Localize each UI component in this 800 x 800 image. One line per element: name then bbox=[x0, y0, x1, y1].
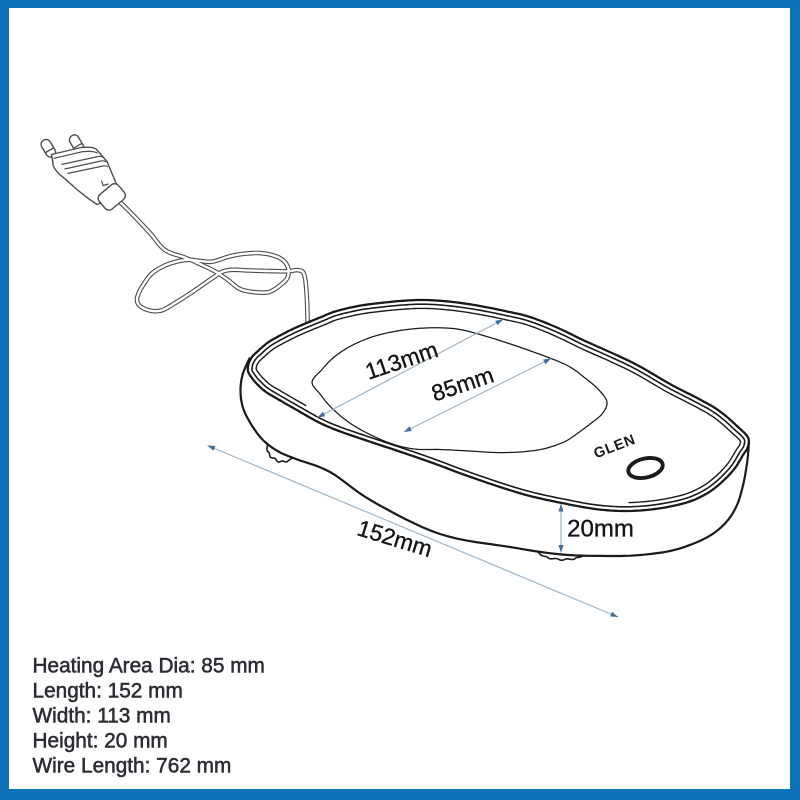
svg-text:Wire Length: 762 mm: Wire Length: 762 mm bbox=[33, 755, 232, 778]
svg-text:Heating Area Dia: 85 mm: Heating Area Dia: 85 mm bbox=[33, 655, 265, 678]
svg-text:Width: 113 mm: Width: 113 mm bbox=[33, 705, 171, 728]
svg-text:Length: 152 mm: Length: 152 mm bbox=[33, 680, 183, 703]
svg-text:20mm: 20mm bbox=[567, 516, 634, 543]
svg-text:Height: 20 mm: Height: 20 mm bbox=[33, 730, 168, 753]
